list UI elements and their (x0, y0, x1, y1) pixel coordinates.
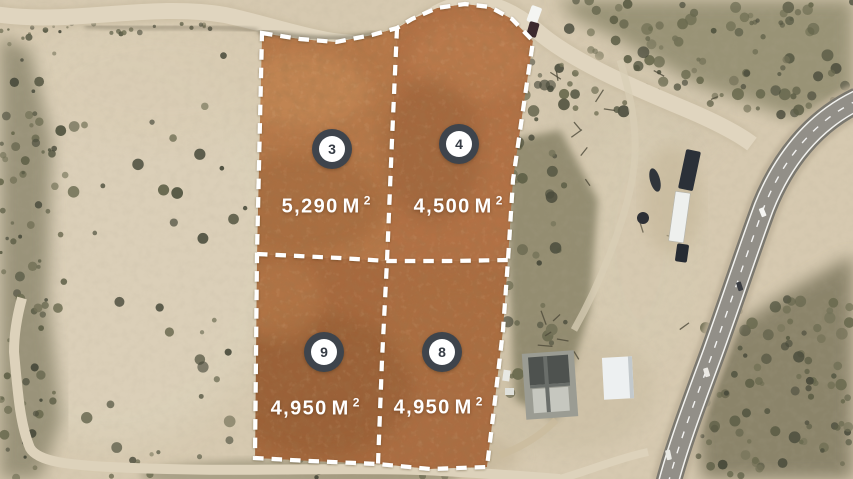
lot-9-badge: 9 (304, 332, 344, 372)
lot-9-area-sup: 2 (353, 396, 360, 410)
lot-9-number: 9 (311, 339, 337, 365)
lot-4-area-unit: M (475, 195, 493, 217)
lot-8-area-sup: 2 (476, 395, 483, 409)
concrete-house (522, 350, 578, 419)
small-shed-2 (505, 388, 514, 395)
lot-4-area-label: 4,500M2 (414, 194, 503, 219)
lot-3-area-unit: M (343, 195, 361, 217)
lot-9-area-label: 4,950M2 (271, 396, 360, 421)
lot-9-area-value: 4,950 (271, 397, 328, 419)
lot-3-badge: 3 (312, 129, 352, 169)
lot-4-badge: 4 (439, 124, 479, 164)
lot-3-area-sup: 2 (364, 194, 371, 208)
lot-3-number: 3 (319, 136, 345, 162)
truck-cab (675, 243, 689, 262)
lot-8-area-unit: M (455, 396, 473, 418)
lot-4-area-value: 4,500 (414, 195, 471, 217)
aerial-lot-map: 3 4 9 8 5,290M2 4,500M2 4,950M2 4,950M2 … (0, 0, 853, 479)
lot-8-badge: 8 (422, 332, 462, 372)
dark-equipment (637, 212, 649, 224)
lot-8-area-label: 4,950M2 (394, 395, 483, 420)
lot-4-number: 4 (446, 131, 472, 157)
lot-4-area-sup: 2 (496, 194, 503, 208)
white-building (602, 356, 634, 400)
lot-9-area-unit: M (332, 397, 350, 419)
lot-3-area-value: 5,290 (282, 195, 339, 217)
lot-8-number: 8 (429, 339, 455, 365)
lot-8-area-value: 4,950 (394, 396, 451, 418)
lot-3-area-label: 5,290M2 (282, 194, 371, 219)
